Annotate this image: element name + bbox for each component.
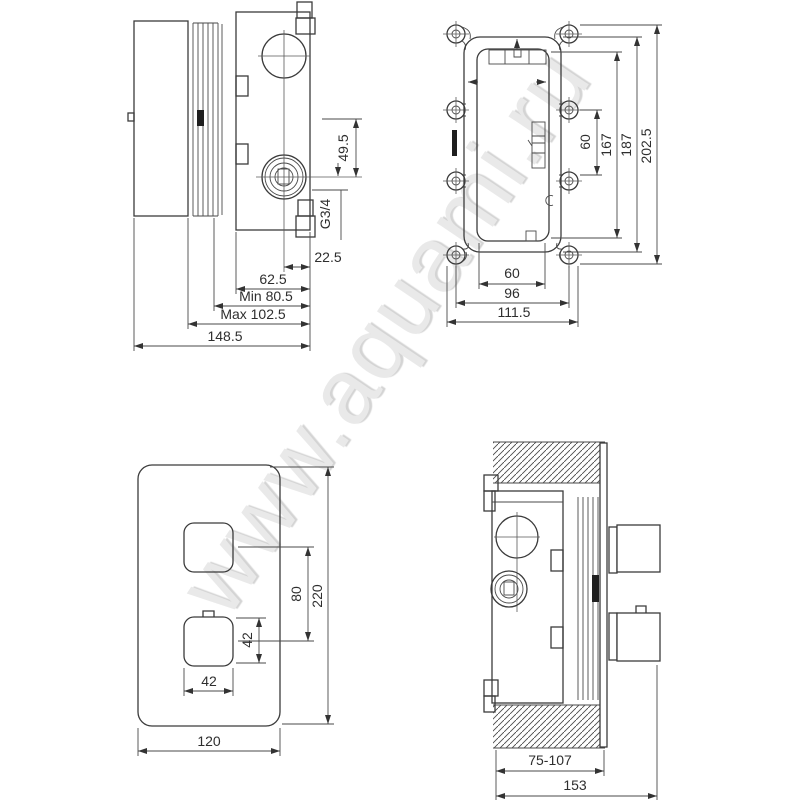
dim-inner-height: 167 xyxy=(598,133,614,157)
dim-overall-width: 111.5 xyxy=(498,304,531,320)
bottom-notch xyxy=(526,231,536,241)
dim-plate-width: 120 xyxy=(197,733,221,749)
dim-overall-height: 202.5 xyxy=(638,128,654,163)
dim-body-depth: 62.5 xyxy=(259,271,286,287)
top-strip xyxy=(489,50,546,64)
dim-plate-height: 220 xyxy=(309,584,325,608)
dim-thread: G3/4 xyxy=(317,199,333,230)
front-view-body xyxy=(443,21,582,268)
wall-section-top xyxy=(493,442,605,483)
wall-section-bottom xyxy=(493,705,605,748)
side-view-body xyxy=(128,2,362,272)
faceplate-edge xyxy=(600,443,607,747)
lower-handle-tab xyxy=(203,611,214,617)
upper-handle-side xyxy=(609,525,660,573)
dim-bracket-height: 60 xyxy=(577,134,593,150)
dim-handle-spacing: 80 xyxy=(288,586,304,602)
outlet-fitting-bottom xyxy=(298,200,313,216)
dim-handle-width: 42 xyxy=(201,673,217,689)
view-front: 60 167 187 202.5 60 96 111.5 xyxy=(443,21,662,327)
left-edge-mark xyxy=(452,130,457,156)
dim-install-depth-range: 75-107 xyxy=(528,752,572,768)
installed-body xyxy=(484,443,660,747)
lower-handle-tab-side xyxy=(636,606,646,613)
flange-mark xyxy=(197,110,204,126)
shower-valve-technical-drawing: 49.5 G3/4 22.5 62.5 Min 80.5 Max 102.5 1… xyxy=(0,0,800,800)
dim-axis-to-face: 22.5 xyxy=(314,249,341,265)
lower-handle xyxy=(184,617,233,666)
flange-mark-installed xyxy=(592,575,599,602)
technical-drawing-page: www.aquami.ru xyxy=(0,0,800,800)
center-bracket xyxy=(528,122,545,168)
view-plate: 80 220 42 42 120 xyxy=(138,465,334,756)
plate-dimensions: 80 220 42 42 120 xyxy=(138,467,334,756)
dim-inner-width: 60 xyxy=(504,265,520,281)
box-outer-frame xyxy=(464,37,561,252)
dim-overall-depth: 153 xyxy=(563,777,587,793)
lower-handle-side xyxy=(609,606,660,661)
dim-handle-height: 42 xyxy=(239,632,255,648)
dim-port-height: 49.5 xyxy=(335,134,351,161)
dim-frame-height: 187 xyxy=(618,133,634,157)
dim-screw-spacing-width: 96 xyxy=(504,285,520,301)
upper-handle xyxy=(184,523,233,572)
dim-total-depth: 148.5 xyxy=(207,328,242,344)
view-side: 49.5 G3/4 22.5 62.5 Min 80.5 Max 102.5 1… xyxy=(128,2,362,351)
front-view-dimensions: 60 167 187 202.5 60 96 111.5 xyxy=(447,25,662,327)
dim-max-depth: Max 102.5 xyxy=(220,306,286,322)
dim-min-depth: Min 80.5 xyxy=(239,288,293,304)
box-inner-frame xyxy=(477,49,549,241)
view-installed: 75-107 153 xyxy=(484,442,660,800)
